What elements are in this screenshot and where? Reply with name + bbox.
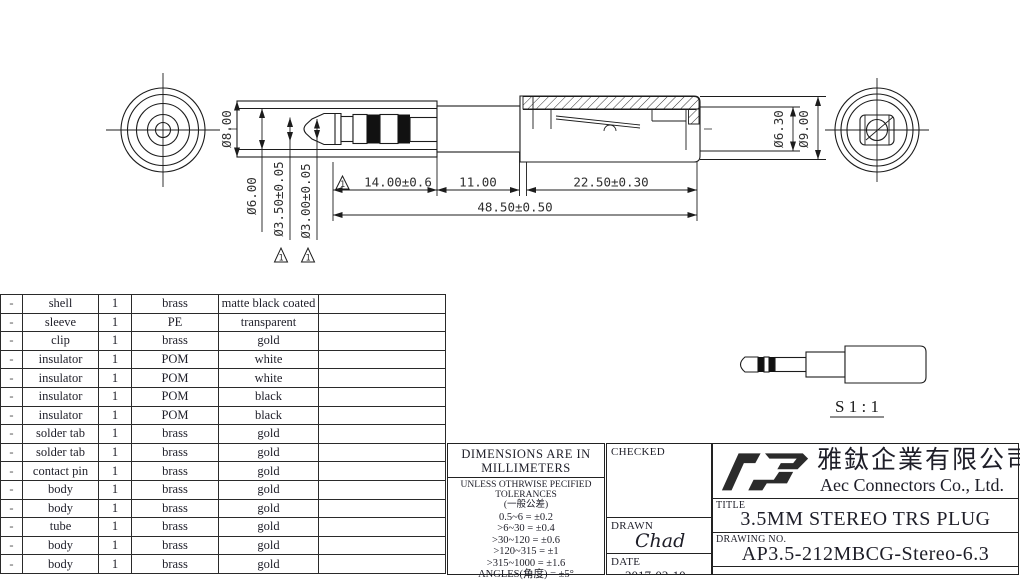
part-name-cell: clip — [23, 332, 99, 351]
part-name-cell: body — [23, 536, 99, 555]
part-note-cell — [319, 332, 446, 351]
part-material-cell: POM — [132, 350, 219, 369]
part-finish-cell: gold — [219, 443, 319, 462]
part-finish-cell: gold — [219, 462, 319, 481]
checked-cell: CHECKED — [607, 444, 711, 518]
table-row: - body 1 brass gold — [1, 536, 446, 555]
part-qty-cell: 1 — [99, 350, 132, 369]
part-note-cell — [319, 295, 446, 314]
part-material-cell: POM — [132, 406, 219, 425]
part-finish-cell: gold — [219, 425, 319, 444]
tolerance-line: >120~315 = ±1 — [448, 546, 604, 558]
part-item-cell: - — [1, 443, 23, 462]
part-item-cell: - — [1, 350, 23, 369]
part-finish-cell: gold — [219, 555, 319, 574]
parts-table: - shell 1 brass matte black coated - sle… — [0, 294, 446, 574]
part-note-cell — [319, 443, 446, 462]
part-note-cell — [319, 425, 446, 444]
part-qty-cell: 1 — [99, 332, 132, 351]
tolerance-block: DIMENSIONS ARE IN MILLIMETERS UNLESS OTH… — [447, 443, 605, 575]
units-note: DIMENSIONS ARE IN MILLIMETERS — [448, 444, 604, 478]
dim-dia-6: Ø6.00 — [244, 177, 259, 215]
part-note-cell — [319, 555, 446, 574]
tolerance-values: 0.5~6 = ±0.2 >6~30 = ±0.4 >30~120 = ±0.6… — [448, 511, 604, 581]
part-finish-cell: gold — [219, 536, 319, 555]
table-row: - body 1 brass gold — [1, 480, 446, 499]
part-name-cell: insulator — [23, 369, 99, 388]
part-item-cell: - — [1, 406, 23, 425]
part-material-cell: PE — [132, 313, 219, 332]
side-view — [228, 96, 712, 162]
checked-label: CHECKED — [611, 446, 665, 458]
part-item-cell: - — [1, 295, 23, 314]
part-qty-cell: 1 — [99, 313, 132, 332]
part-item-cell: - — [1, 499, 23, 518]
flag-triangle-icon — [336, 176, 349, 189]
part-finish-cell: black — [219, 387, 319, 406]
part-material-cell: brass — [132, 536, 219, 555]
tolerance-sub-line3: (一般公差) — [448, 500, 604, 510]
part-material-cell: POM — [132, 369, 219, 388]
tolerance-subheading: UNLESS OTHRWISE PECIFIED TOLERANCES (一般公… — [448, 478, 604, 511]
dim-dia-8: Ø8.00 — [219, 110, 234, 148]
part-finish-cell: white — [219, 350, 319, 369]
part-finish-cell: matte black coated — [219, 295, 319, 314]
table-row: - tube 1 brass gold — [1, 518, 446, 537]
part-qty-cell: 1 — [99, 425, 132, 444]
table-row: - contact pin 1 brass gold — [1, 462, 446, 481]
table-row: - body 1 brass gold — [1, 555, 446, 574]
part-name-cell: contact pin — [23, 462, 99, 481]
part-finish-cell: gold — [219, 480, 319, 499]
part-name-cell: tube — [23, 518, 99, 537]
company-name-cn: 雅鈦企業有限公司 — [817, 448, 1020, 473]
table-row: - insulator 1 POM white — [1, 350, 446, 369]
part-item-cell: - — [1, 536, 23, 555]
title-block: 雅鈦企業有限公司 Aec Connectors Co., Ltd. TITLE … — [712, 443, 1019, 575]
company-logo-icon — [719, 449, 811, 493]
left-end-view — [106, 73, 220, 187]
table-row: - insulator 1 POM black — [1, 387, 446, 406]
length-dimensions — [333, 152, 697, 221]
part-qty-cell: 1 — [99, 443, 132, 462]
dim-len-14: 14.00±0.6 — [364, 175, 432, 190]
part-item-cell: - — [1, 332, 23, 351]
part-material-cell: POM — [132, 387, 219, 406]
flag-triangle-icon — [302, 248, 315, 262]
part-material-cell: brass — [132, 480, 219, 499]
part-material-cell: brass — [132, 425, 219, 444]
part-note-cell — [319, 369, 446, 388]
part-material-cell: brass — [132, 518, 219, 537]
dim-len-48-5: 48.50±0.50 — [477, 200, 552, 215]
part-name-cell: solder tab — [23, 425, 99, 444]
part-item-cell: - — [1, 518, 23, 537]
approval-column: CHECKED DRAWN Chad DATE 2017-02-10 — [606, 443, 712, 575]
date-value: 2017-02-10 — [625, 568, 686, 574]
tolerance-sub-line2: TOLERANCES — [448, 490, 604, 500]
part-material-cell: brass — [132, 443, 219, 462]
part-finish-cell: gold — [219, 518, 319, 537]
tolerance-sub-line1: UNLESS OTHRWISE PECIFIED — [448, 480, 604, 490]
part-name-cell: body — [23, 555, 99, 574]
part-qty-cell: 1 — [99, 406, 132, 425]
title-row: TITLE 3.5MM STEREO TRS PLUG — [713, 499, 1018, 533]
part-qty-cell: 1 — [99, 387, 132, 406]
date-label: DATE — [611, 556, 640, 568]
part-name-cell: shell — [23, 295, 99, 314]
dim-len-22-5: 22.50±0.30 — [573, 175, 648, 190]
tolerance-line: >30~120 = ±0.6 — [448, 535, 604, 547]
part-finish-cell: black — [219, 406, 319, 425]
table-row: - body 1 brass gold — [1, 499, 446, 518]
drawing-number: AP3.5-212MBCG-Stereo-6.3 — [713, 543, 1018, 566]
part-qty-cell: 1 — [99, 518, 132, 537]
part-item-cell: - — [1, 555, 23, 574]
part-material-cell: brass — [132, 462, 219, 481]
part-item-cell: - — [1, 462, 23, 481]
part-name-cell: sleeve — [23, 313, 99, 332]
part-qty-cell: 1 — [99, 369, 132, 388]
tolerance-line: >315~1000 = ±1.6 — [448, 558, 604, 570]
part-item-cell: - — [1, 387, 23, 406]
part-note-cell — [319, 462, 446, 481]
flag-number: 1 — [340, 180, 345, 190]
part-name-cell: insulator — [23, 387, 99, 406]
date-cell: DATE 2017-02-10 — [607, 554, 711, 574]
drawn-signature: Chad — [635, 530, 685, 552]
part-note-cell — [319, 518, 446, 537]
dim-dia-9: Ø9.00 — [796, 110, 811, 148]
tolerance-line: 0.5~6 = ±0.2 — [448, 512, 604, 524]
part-item-cell: - — [1, 369, 23, 388]
dim-dia-3-0: Ø3.00±0.05 — [298, 163, 313, 238]
part-note-cell — [319, 499, 446, 518]
part-item-cell: - — [1, 313, 23, 332]
part-name-cell: insulator — [23, 350, 99, 369]
table-row: - clip 1 brass gold — [1, 332, 446, 351]
part-qty-cell: 1 — [99, 555, 132, 574]
company-name-en: Aec Connectors Co., Ltd. — [817, 476, 1020, 494]
part-note-cell — [319, 387, 446, 406]
company-names: 雅鈦企業有限公司 Aec Connectors Co., Ltd. — [817, 448, 1020, 494]
part-finish-cell: gold — [219, 499, 319, 518]
flag-triangle-icon — [275, 248, 288, 262]
part-item-cell: - — [1, 480, 23, 499]
table-row: - sleeve 1 PE transparent — [1, 313, 446, 332]
part-item-cell: - — [1, 425, 23, 444]
part-name-cell: body — [23, 480, 99, 499]
part-material-cell: brass — [132, 555, 219, 574]
table-row: - shell 1 brass matte black coated — [1, 295, 446, 314]
right-diameter-dimensions — [700, 97, 826, 160]
part-qty-cell: 1 — [99, 536, 132, 555]
part-finish-cell: transparent — [219, 313, 319, 332]
scale-label: S 1 : 1 — [835, 397, 879, 416]
part-qty-cell: 1 — [99, 499, 132, 518]
units-note-line2: MILLIMETERS — [448, 461, 604, 475]
dim-len-11: 11.00 — [459, 175, 497, 190]
part-finish-cell: gold — [219, 332, 319, 351]
table-row: - solder tab 1 brass gold — [1, 425, 446, 444]
table-row: - insulator 1 POM black — [1, 406, 446, 425]
part-material-cell: brass — [132, 332, 219, 351]
drawing-number-row: DRAWING NO. AP3.5-212MBCG-Stereo-6.3 — [713, 533, 1018, 567]
part-note-cell — [319, 313, 446, 332]
part-note-cell — [319, 406, 446, 425]
part-material-cell: brass — [132, 499, 219, 518]
dim-dia-3-5: Ø3.50±0.05 — [271, 161, 286, 236]
flag-number: 1 — [278, 254, 283, 264]
part-qty-cell: 1 — [99, 462, 132, 481]
part-name-cell: solder tab — [23, 443, 99, 462]
drawing-title: 3.5MM STEREO TRS PLUG — [713, 508, 1018, 531]
part-qty-cell: 1 — [99, 480, 132, 499]
part-note-cell — [319, 480, 446, 499]
drawn-cell: DRAWN Chad — [607, 518, 711, 554]
part-note-cell — [319, 350, 446, 369]
tolerance-line: >6~30 = ±0.4 — [448, 523, 604, 535]
right-end-view — [825, 78, 929, 182]
table-row: - solder tab 1 brass gold — [1, 443, 446, 462]
table-row: - insulator 1 POM white — [1, 369, 446, 388]
company-row: 雅鈦企業有限公司 Aec Connectors Co., Ltd. — [713, 444, 1018, 499]
part-note-cell — [319, 536, 446, 555]
flag-number: 1 — [305, 254, 310, 264]
part-name-cell: body — [23, 499, 99, 518]
scale-1-1-view — [741, 346, 927, 417]
part-name-cell: insulator — [23, 406, 99, 425]
part-material-cell: brass — [132, 295, 219, 314]
part-finish-cell: white — [219, 369, 319, 388]
units-note-line1: DIMENSIONS ARE IN — [448, 447, 604, 461]
diameter-dimensions — [237, 101, 317, 262]
part-qty-cell: 1 — [99, 295, 132, 314]
dim-dia-6-3: Ø6.30 — [771, 110, 786, 148]
